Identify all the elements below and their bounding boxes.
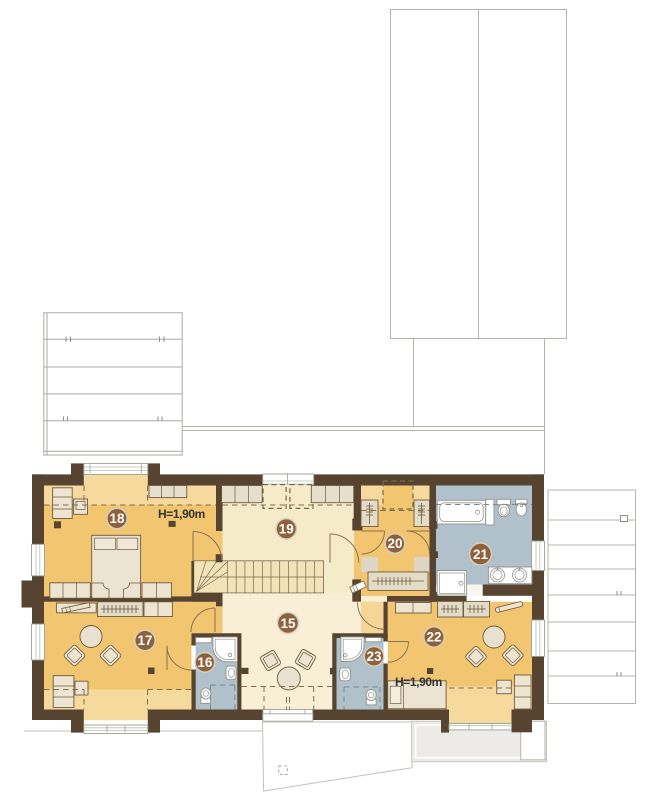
svg-text:18: 18	[109, 511, 125, 526]
svg-text:16: 16	[197, 655, 213, 670]
svg-text:H=1,90m: H=1,90m	[395, 675, 442, 689]
svg-text:21: 21	[473, 547, 489, 562]
svg-text:15: 15	[280, 616, 296, 631]
svg-text:23: 23	[366, 649, 382, 664]
svg-text:20: 20	[387, 536, 402, 551]
svg-text:17: 17	[137, 633, 152, 648]
svg-text:19: 19	[279, 522, 294, 537]
svg-text:22: 22	[426, 630, 441, 645]
svg-text:H=1,90m: H=1,90m	[158, 507, 205, 521]
